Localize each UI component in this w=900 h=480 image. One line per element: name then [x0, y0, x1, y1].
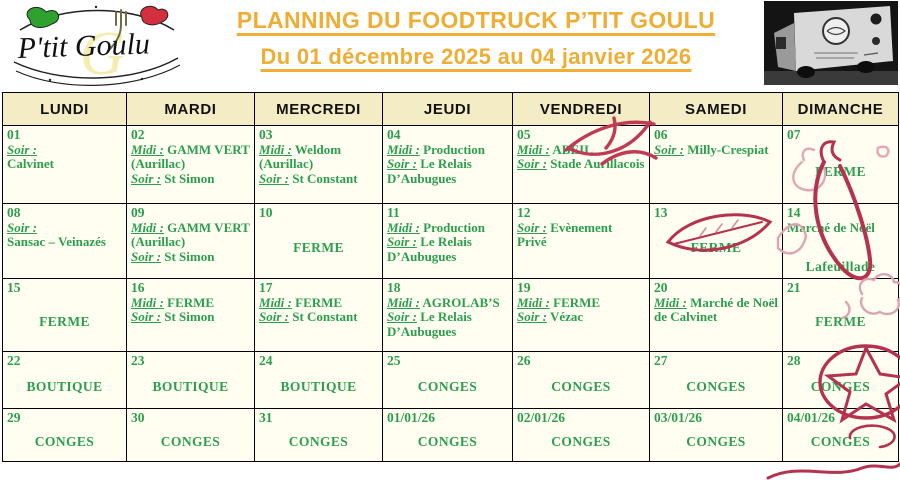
day-cell: 28CONGES — [783, 352, 899, 409]
cell-note: CONGES — [259, 434, 378, 450]
day-cell: 02Midi : GAMM VERT (Aurillac)Soir : St S… — [127, 126, 255, 204]
cell-note: CONGES — [7, 434, 122, 450]
day-cell: 18Midi : AGROLAB’SSoir : Le Relais D’Aub… — [383, 279, 513, 352]
entry-text: Stade Aurillacois — [547, 156, 645, 171]
cell-date: 04/01/26 — [787, 410, 894, 426]
entry-text: Vézac — [547, 309, 583, 324]
day-cell: 20Midi : Marché de Noël de Calvinet — [650, 279, 783, 352]
day-cell: 19Midi : FERMESoir : Vézac — [513, 279, 650, 352]
entry-text: Calvinet — [7, 156, 54, 171]
logo-red-hat-icon — [141, 6, 168, 24]
page-title: PLANNING DU FOODTRUCK P’TIT GOULU — [192, 7, 760, 34]
day-cell: 02/01/26CONGES — [513, 409, 650, 462]
cell-date: 02 — [131, 127, 250, 143]
cell-date: 06 — [654, 127, 778, 143]
cell-date: 23 — [131, 353, 250, 369]
cell-date: 24 — [259, 353, 378, 369]
cell-date: 07 — [787, 127, 894, 143]
day-cell: 15FERME — [3, 279, 127, 352]
cell-date: 15 — [7, 280, 122, 296]
day-cell: 30CONGES — [127, 409, 255, 462]
cell-date: 16 — [131, 280, 250, 296]
cell-date: 27 — [654, 353, 778, 369]
cell-entry: Soir : Le Relais D’Aubugues — [387, 157, 508, 187]
cell-date: 10 — [259, 205, 378, 221]
cell-entry: Soir : St Constant — [259, 172, 378, 187]
cell-note: BOUTIQUE — [131, 379, 250, 395]
entry-text: FERME — [292, 295, 342, 310]
ptit-goulu-logo: G P'tit Goulu — [0, 0, 192, 90]
cell-note: BOUTIQUE — [7, 379, 122, 395]
cell-date: 30 — [131, 410, 250, 426]
week-row: 22BOUTIQUE23BOUTIQUE24BOUTIQUE25CONGES26… — [3, 352, 899, 409]
day-cell: 04Midi : ProductionSoir : Le Relais D’Au… — [383, 126, 513, 204]
entry-label: Soir : — [131, 171, 161, 186]
cell-note: CONGES — [787, 434, 894, 450]
cell-date: 31 — [259, 410, 378, 426]
cell-date: 01 — [7, 127, 122, 143]
day-cell: 03/01/26CONGES — [650, 409, 783, 462]
cell-date: 13 — [654, 205, 778, 221]
day-cell: 05Midi : ABEILSoir : Stade Aurillacois — [513, 126, 650, 204]
day-cell: 03Midi : Weldom (Aurillac)Soir : St Cons… — [255, 126, 383, 204]
entry-text: Production — [420, 220, 485, 235]
cell-date: 03 — [259, 127, 378, 143]
cell-date: 28 — [787, 353, 894, 369]
cell-note: CONGES — [654, 379, 778, 395]
day-cell: 26CONGES — [513, 352, 650, 409]
entry-label: Midi : — [387, 220, 420, 235]
cell-entry: Sansac – Veinazés — [7, 235, 122, 250]
cell-date: 26 — [517, 353, 645, 369]
logo-green-hat-icon — [27, 7, 58, 27]
cell-entry: Midi : AGROLAB’S — [387, 296, 508, 311]
cell-date: 09 — [131, 205, 250, 221]
entry-label: Soir : — [259, 309, 289, 324]
entry-text: Sansac – Veinazés — [7, 234, 106, 249]
entry-text: St Simon — [161, 309, 214, 324]
day-cell: 04/01/26CONGES — [783, 409, 899, 462]
day-cell: 25CONGES — [383, 352, 513, 409]
cell-note: CONGES — [517, 379, 645, 395]
entry-label: Soir : — [7, 142, 37, 157]
entry-label: Soir : — [517, 220, 547, 235]
cell-entry: Midi : Production — [387, 221, 508, 236]
cell-note: CONGES — [787, 379, 894, 395]
entry-label: Soir : — [131, 309, 161, 324]
page-subtitle: Du 01 décembre 2025 au 04 janvier 2026 — [192, 44, 760, 70]
entry-label: Midi : — [259, 295, 292, 310]
day-cell: 01Soir :Calvinet — [3, 126, 127, 204]
cell-entry: Soir : Stade Aurillacois — [517, 157, 645, 172]
cell-date: 21 — [787, 280, 894, 296]
day-header-row: LUNDIMARDIMERCREDIJEUDIVENDREDISAMEDIDIM… — [3, 93, 899, 126]
entry-text: Production — [420, 142, 485, 157]
day-cell: 29CONGES — [3, 409, 127, 462]
cell-date: 05 — [517, 127, 645, 143]
entry-text: St Constant — [289, 171, 358, 186]
day-header: LUNDI — [3, 93, 127, 126]
cell-entry: Midi : FERME — [131, 296, 250, 311]
foodtruck-photo — [764, 1, 898, 85]
week-row: 08Soir :Sansac – Veinazés09Midi : GAMM V… — [3, 204, 899, 279]
cell-note: BOUTIQUE — [259, 379, 378, 395]
day-cell: 07FERME — [783, 126, 899, 204]
day-cell: 09Midi : GAMM VERT (Aurillac)Soir : St S… — [127, 204, 255, 279]
entry-text: St Simon — [161, 171, 214, 186]
week-row: 29CONGES30CONGES31CONGES01/01/26CONGES02… — [3, 409, 899, 462]
day-header: MARDI — [127, 93, 255, 126]
cell-note: FERME — [7, 314, 122, 330]
banner: G P'tit Goulu PLANNING DU FOODTRUCK P’TI… — [0, 0, 900, 92]
title-block: PLANNING DU FOODTRUCK P’TIT GOULU Du 01 … — [192, 0, 760, 70]
day-cell: 31CONGES — [255, 409, 383, 462]
day-cell: 14Marché de NoëlLafeuillade — [783, 204, 899, 279]
cell-entry: Soir : Vézac — [517, 310, 645, 325]
cell-date: 08 — [7, 205, 122, 221]
entry-label: Midi : — [131, 295, 164, 310]
cell-date: 12 — [517, 205, 645, 221]
cell-entry: Calvinet — [7, 157, 122, 172]
cell-entry: Midi : GAMM VERT (Aurillac) — [131, 221, 250, 251]
entry-text: St Simon — [161, 249, 214, 264]
logo-text: P'tit Goulu — [16, 27, 150, 65]
cell-entry: Midi : Weldom (Aurillac) — [259, 143, 378, 173]
cell-entry: Soir : Milly-Crespiat — [654, 143, 778, 158]
doodle-bottom-scribble-icon — [768, 464, 900, 478]
day-cell: 17Midi : FERMESoir : St Constant — [255, 279, 383, 352]
day-header: DIMANCHE — [783, 93, 899, 126]
day-cell: 16Midi : FERMESoir : St Simon — [127, 279, 255, 352]
day-cell: 13FERME — [650, 204, 783, 279]
cell-date: 18 — [387, 280, 508, 296]
cell-note: Lafeuillade — [787, 259, 894, 275]
cell-entry: Midi : Marché de Noël de Calvinet — [654, 296, 778, 326]
cell-date: 03/01/26 — [654, 410, 778, 426]
cell-entry: Midi : FERME — [259, 296, 378, 311]
day-header: SAMEDI — [650, 93, 783, 126]
entry-label: Soir : — [259, 171, 289, 186]
cell-date: 02/01/26 — [517, 410, 645, 426]
planning-table: LUNDIMARDIMERCREDIJEUDIVENDREDISAMEDIDIM… — [2, 92, 899, 462]
cell-entry: Marché de Noël — [787, 221, 894, 236]
entry-label: Soir : — [131, 249, 161, 264]
entry-label: Soir : — [387, 234, 417, 249]
entry-text: AGROLAB’S — [420, 295, 500, 310]
cell-entry: Soir : Le Relais D’Aubugues — [387, 235, 508, 265]
cell-note: CONGES — [387, 434, 508, 450]
entry-label: Soir : — [387, 309, 417, 324]
entry-label: Midi : — [387, 142, 420, 157]
cell-entry: Soir : St Simon — [131, 310, 250, 325]
day-cell: 01/01/26CONGES — [383, 409, 513, 462]
day-cell: 21FERME — [783, 279, 899, 352]
cell-note: FERME — [259, 240, 378, 256]
cell-date: 14 — [787, 205, 894, 221]
day-header: MERCREDI — [255, 93, 383, 126]
entry-label: Midi : — [387, 295, 420, 310]
cell-entry: Soir : — [7, 221, 122, 236]
day-header: JEUDI — [383, 93, 513, 126]
cell-entry: Soir : St Simon — [131, 250, 250, 265]
day-cell: 12Soir : Evènement Privé — [513, 204, 650, 279]
cell-note: CONGES — [387, 379, 508, 395]
cell-entry: Midi : FERME — [517, 296, 645, 311]
cell-entry: Soir : — [7, 143, 122, 158]
entry-label: Midi : — [131, 142, 164, 157]
entry-label: Soir : — [7, 220, 37, 235]
day-cell: 22BOUTIQUE — [3, 352, 127, 409]
day-header: VENDREDI — [513, 93, 650, 126]
entry-label: Midi : — [517, 142, 550, 157]
entry-label: Midi : — [517, 295, 550, 310]
entry-text: Marché de Noël — [787, 220, 875, 235]
entry-label: Midi : — [259, 142, 292, 157]
cell-date: 20 — [654, 280, 778, 296]
cell-date: 25 — [387, 353, 508, 369]
cell-date: 22 — [7, 353, 122, 369]
cell-note: CONGES — [131, 434, 250, 450]
entry-text: FERME — [550, 295, 600, 310]
cell-entry: Midi : GAMM VERT (Aurillac) — [131, 143, 250, 173]
entry-label: Soir : — [654, 142, 684, 157]
entry-label: Midi : — [654, 295, 687, 310]
cell-entry: Soir : St Simon — [131, 172, 250, 187]
entry-label: Soir : — [517, 309, 547, 324]
cell-date: 29 — [7, 410, 122, 426]
day-cell: 10FERME — [255, 204, 383, 279]
entry-text: ABEIL — [550, 142, 593, 157]
entry-text: St Constant — [289, 309, 358, 324]
day-cell: 11Midi : ProductionSoir : Le Relais D’Au… — [383, 204, 513, 279]
cell-date: 11 — [387, 205, 508, 221]
week-row: 01Soir :Calvinet02Midi : GAMM VERT (Auri… — [3, 126, 899, 204]
cell-entry: Soir : Evènement Privé — [517, 221, 645, 251]
cell-date: 19 — [517, 280, 645, 296]
cell-note: FERME — [787, 164, 894, 180]
week-row: 15FERME16Midi : FERMESoir : St Simon17Mi… — [3, 279, 899, 352]
day-cell: 24BOUTIQUE — [255, 352, 383, 409]
cell-note: CONGES — [654, 434, 778, 450]
cell-note: CONGES — [517, 434, 645, 450]
cell-entry: Midi : Production — [387, 143, 508, 158]
entry-label: Midi : — [131, 220, 164, 235]
cell-date: 01/01/26 — [387, 410, 508, 426]
cell-date: 17 — [259, 280, 378, 296]
day-cell: 23BOUTIQUE — [127, 352, 255, 409]
cell-entry: Midi : ABEIL — [517, 143, 645, 158]
cell-note: FERME — [787, 314, 894, 330]
cell-note: FERME — [654, 240, 778, 256]
day-cell: 06Soir : Milly-Crespiat — [650, 126, 783, 204]
entry-text: Milly-Crespiat — [684, 142, 769, 157]
entry-text: FERME — [164, 295, 214, 310]
day-cell: 27CONGES — [650, 352, 783, 409]
day-cell: 08Soir :Sansac – Veinazés — [3, 204, 127, 279]
entry-label: Soir : — [517, 156, 547, 171]
cell-entry: Soir : St Constant — [259, 310, 378, 325]
entry-label: Soir : — [387, 156, 417, 171]
cell-entry: Soir : Le Relais D’Aubugues — [387, 310, 508, 340]
cell-date: 04 — [387, 127, 508, 143]
